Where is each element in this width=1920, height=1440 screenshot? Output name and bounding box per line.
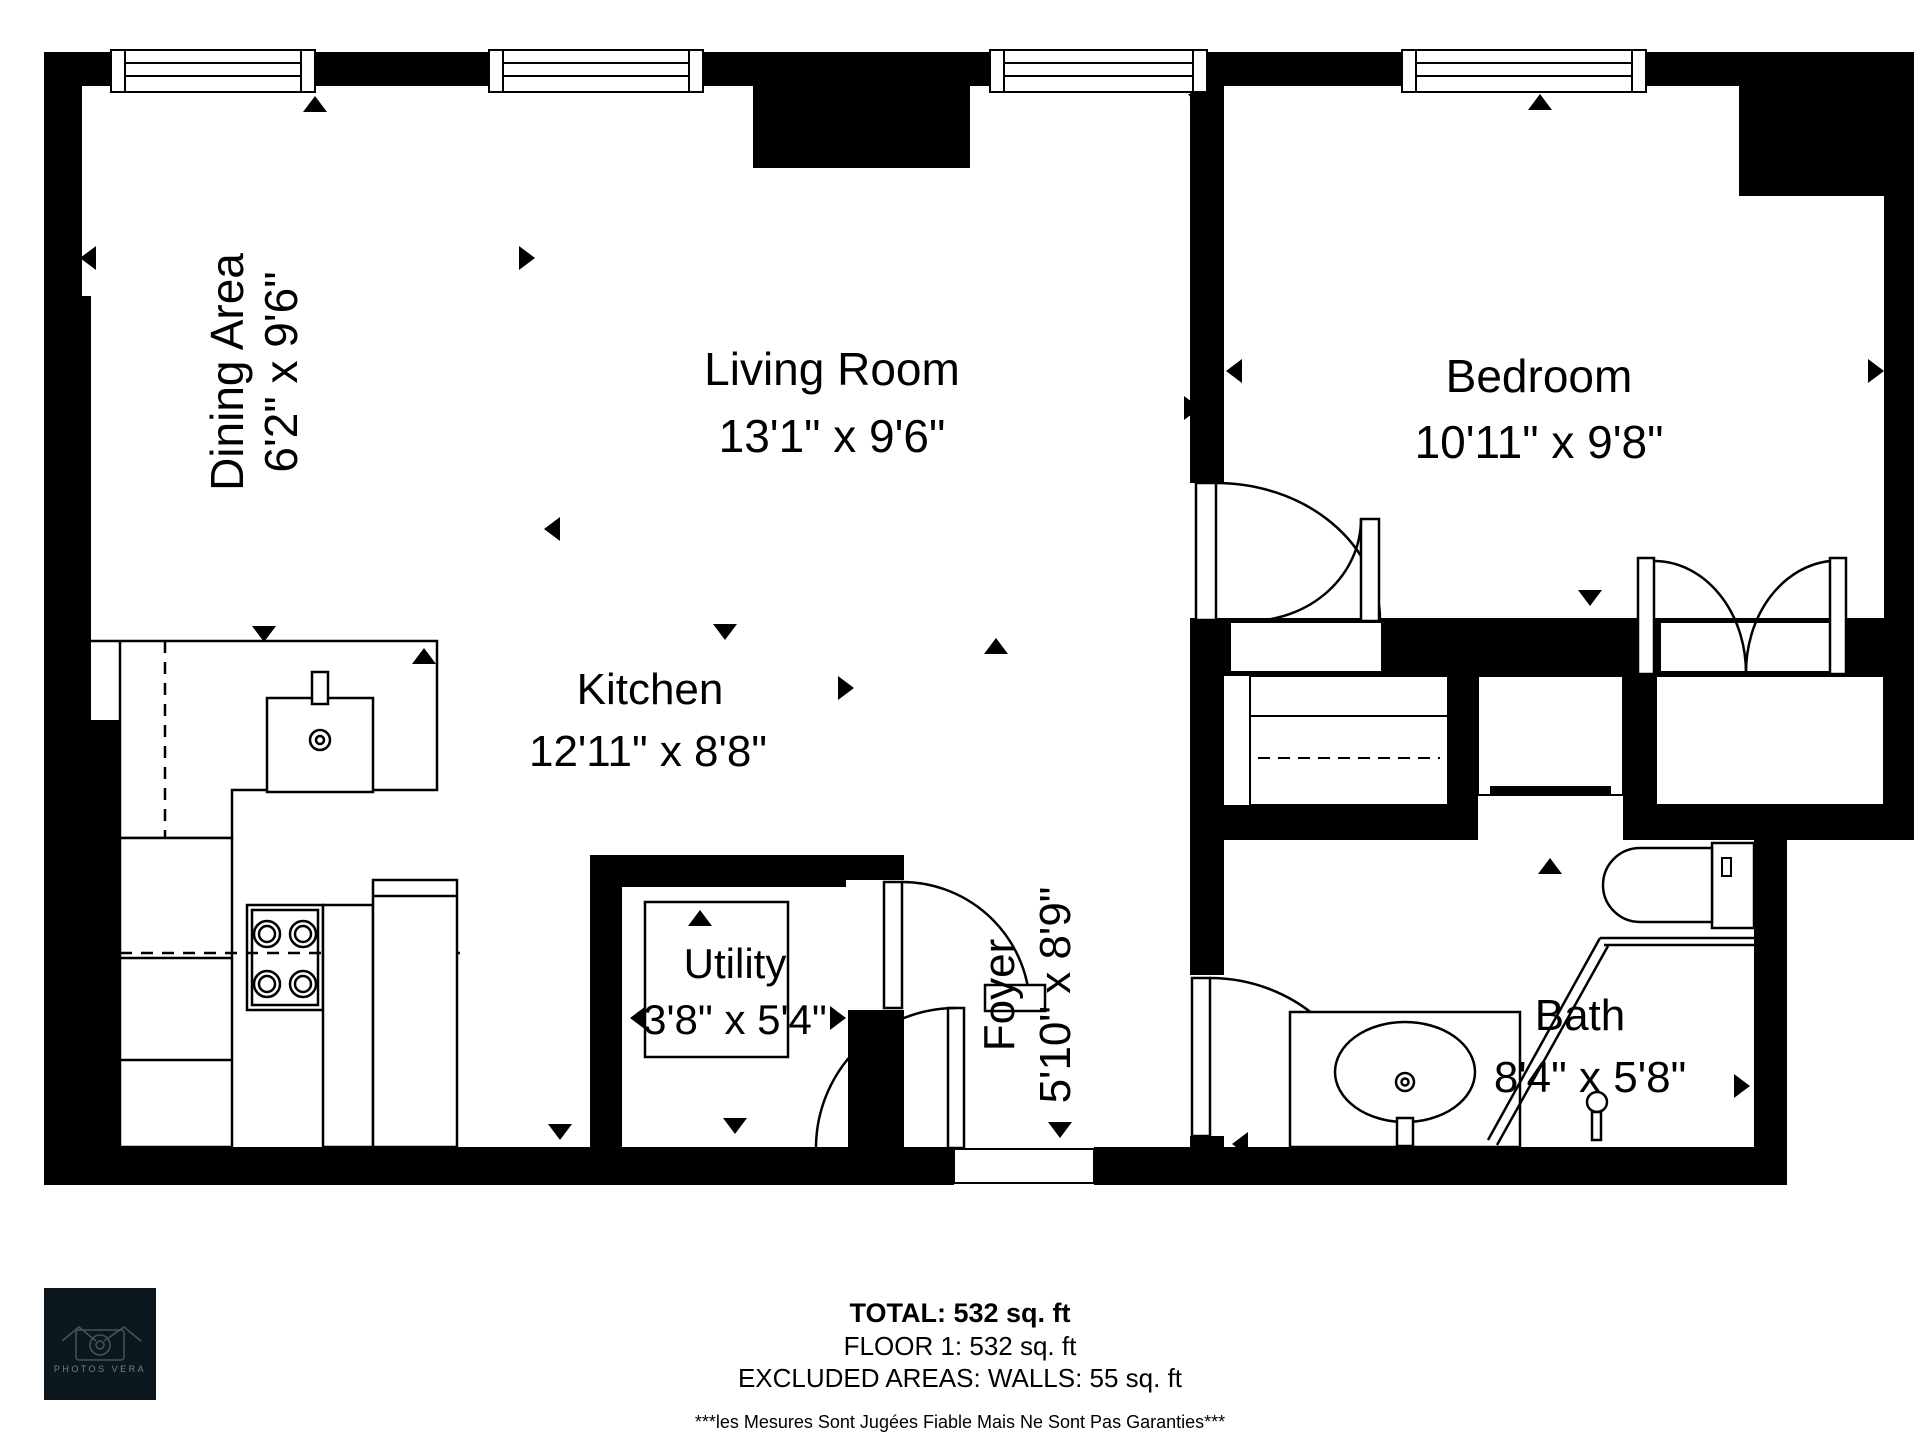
bath-faucet bbox=[1397, 1118, 1413, 1146]
summary-disclaimer: ***les Mesures Sont Jugées Fiable Mais N… bbox=[695, 1412, 1225, 1432]
kitchen-drain-inner bbox=[316, 736, 324, 744]
closet-cubby-gap bbox=[1478, 796, 1623, 840]
wall-utility-left bbox=[590, 855, 622, 1147]
kitchen-faucet bbox=[312, 672, 328, 704]
closet-door-cap-left bbox=[1638, 558, 1654, 674]
label-dining: Dining Area 6'2" x 9'6" bbox=[201, 253, 307, 491]
arrow-right-kitchen bbox=[838, 676, 854, 700]
arrow-down-kitchenbottom bbox=[548, 1124, 572, 1140]
arrow-down-kitchen bbox=[713, 624, 737, 640]
wall-left-lower bbox=[44, 720, 120, 1147]
wall-left-mid bbox=[44, 296, 91, 720]
logo-background bbox=[44, 1288, 156, 1400]
logo-text: PHOTOS VERA bbox=[54, 1364, 146, 1374]
dining-dims: 6'2" x 9'6" bbox=[255, 271, 307, 472]
label-bedroom: Bedroom 10'11" x 9'8" bbox=[1415, 350, 1664, 468]
window-1 bbox=[111, 50, 315, 92]
kitchen-counter-lower bbox=[120, 838, 232, 1147]
wall-cubby-left bbox=[1448, 618, 1478, 840]
entry-threshold bbox=[954, 1149, 1094, 1183]
floor-plan-drawing: Dining Area 6'2" x 9'6" Living Room 13'1… bbox=[0, 0, 1920, 1440]
arrow-up-bath bbox=[1538, 858, 1562, 874]
entry-door-leaf bbox=[948, 1008, 964, 1148]
bath-dims: 8'4" x 5'8" bbox=[1494, 1053, 1686, 1102]
arrow-down-utility bbox=[723, 1118, 747, 1134]
kitchen-name: Kitchen bbox=[577, 665, 724, 714]
summary-excluded: EXCLUDED AREAS: WALLS: 55 sq. ft bbox=[738, 1363, 1183, 1393]
label-kitchen: Kitchen 12'11" x 8'8" bbox=[529, 665, 767, 776]
label-living: Living Room 13'1" x 9'6" bbox=[704, 343, 960, 462]
summary-block: TOTAL: 532 sq. ft FLOOR 1: 532 sq. ft EX… bbox=[695, 1298, 1225, 1432]
wall-bath-right bbox=[1754, 840, 1787, 1185]
arrow-left-dining2 bbox=[544, 517, 560, 541]
closet-left-interior bbox=[1250, 676, 1448, 805]
arrow-down-closet bbox=[1578, 590, 1602, 606]
arrow-left-diningwall bbox=[80, 246, 96, 270]
arrow-up-bedroom bbox=[1528, 94, 1552, 110]
arrow-right-bedroom2 bbox=[1868, 359, 1884, 383]
floor-plan-page: Dining Area 6'2" x 9'6" Living Room 13'1… bbox=[0, 0, 1920, 1440]
closet-door-cap-right bbox=[1830, 558, 1846, 674]
wall-divider-lower bbox=[1190, 1136, 1224, 1185]
wall-left-upper bbox=[44, 52, 82, 296]
wall-closet-left-bottom bbox=[1224, 805, 1448, 840]
summary-total: TOTAL: 532 sq. ft bbox=[849, 1298, 1070, 1328]
window-2 bbox=[489, 50, 703, 92]
kitchen-counter-right bbox=[323, 905, 373, 1147]
wall-divider-upper bbox=[1190, 86, 1224, 483]
arrow-up-foyer bbox=[984, 638, 1008, 654]
fridge bbox=[373, 880, 457, 1147]
closet-right-interior bbox=[1656, 676, 1884, 805]
toilet-handle bbox=[1722, 858, 1731, 876]
stove-burner-4b bbox=[295, 976, 311, 992]
foyer-name: Foyer bbox=[975, 939, 1024, 1051]
arrow-up-dining bbox=[303, 96, 327, 112]
wall-bottom-left bbox=[44, 1147, 954, 1185]
bath-door-leaf bbox=[1192, 978, 1210, 1136]
arrow-right-dining bbox=[519, 246, 535, 270]
dining-name: Dining Area bbox=[201, 253, 253, 491]
toilet-tank bbox=[1712, 843, 1754, 928]
bedroom-door2-leaf bbox=[1361, 519, 1379, 621]
closet-left-threshold bbox=[1230, 622, 1382, 672]
kitchen-fixtures bbox=[91, 641, 460, 1147]
bath-name: Bath bbox=[1535, 991, 1626, 1040]
bath-sink-drain-inner bbox=[1402, 1079, 1409, 1086]
window-3 bbox=[990, 50, 1207, 92]
closet-cubby-threshold bbox=[1490, 786, 1611, 795]
living-dims: 13'1" x 9'6" bbox=[719, 410, 946, 462]
wall-right bbox=[1884, 52, 1914, 840]
wall-column-top bbox=[753, 86, 970, 168]
logo: PHOTOS VERA bbox=[44, 1288, 156, 1400]
bedroom-name: Bedroom bbox=[1446, 350, 1633, 402]
living-name: Living Room bbox=[704, 343, 960, 395]
utility-name: Utility bbox=[684, 940, 787, 987]
utility-dims: 3'8" x 5'4" bbox=[643, 996, 827, 1043]
kitchen-dims: 12'11" x 8'8" bbox=[529, 727, 767, 776]
label-bath: Bath 8'4" x 5'8" bbox=[1494, 991, 1686, 1102]
foyer-dims: 5'10" x 8'9" bbox=[1031, 887, 1080, 1104]
stove-burner-2b bbox=[295, 926, 311, 942]
arrow-right-shower bbox=[1734, 1074, 1750, 1098]
shower-valve-stem bbox=[1592, 1112, 1601, 1140]
stove-burner-3b bbox=[259, 976, 275, 992]
wall-divider-mid bbox=[1190, 618, 1224, 975]
arrow-left-bedroom bbox=[1226, 359, 1242, 383]
window-4 bbox=[1402, 50, 1646, 92]
bedroom-dims: 10'11" x 9'8" bbox=[1415, 416, 1664, 468]
toilet-bowl bbox=[1603, 848, 1712, 922]
summary-floor: FLOOR 1: 532 sq. ft bbox=[844, 1331, 1077, 1361]
stove-burner-1b bbox=[259, 926, 275, 942]
arrow-down-island bbox=[252, 626, 276, 642]
arrow-right-utility bbox=[830, 1006, 846, 1030]
bedroom-door-leaf bbox=[1196, 483, 1216, 620]
arrow-down-entry bbox=[1048, 1122, 1072, 1138]
kitchen-island-counter bbox=[91, 641, 437, 838]
utility-door-leaf bbox=[884, 882, 902, 1008]
closet-cubby-interior bbox=[1478, 676, 1623, 795]
